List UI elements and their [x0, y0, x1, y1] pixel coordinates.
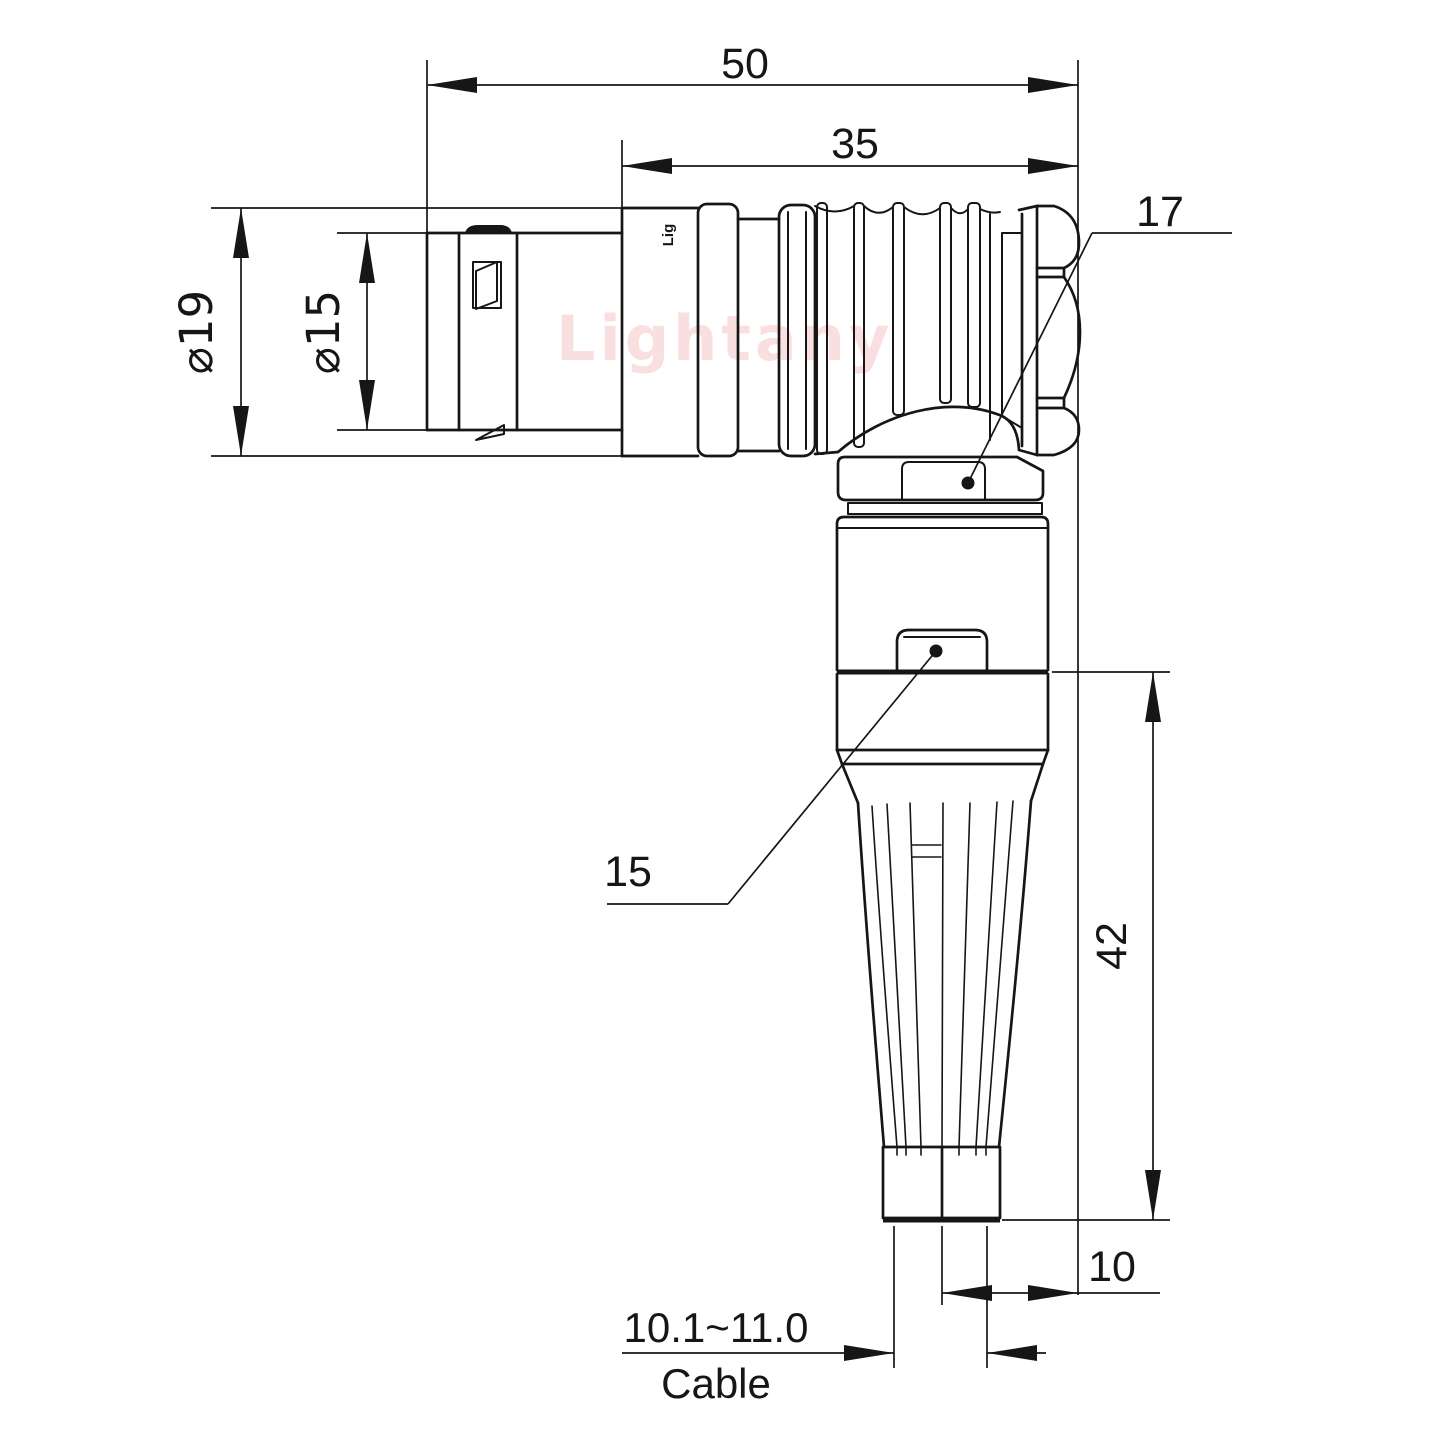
bellows [779, 203, 1019, 456]
arrow-left-icon [987, 1345, 1037, 1361]
dimensions: 50 35 ⌀19 ⌀15 [170, 40, 1232, 1407]
arrow-up-icon [233, 208, 249, 258]
dimension-42: 42 [1002, 672, 1170, 1220]
arrow-left-icon [942, 1285, 992, 1301]
elbow-block [838, 457, 1043, 500]
arrow-down-icon [233, 406, 249, 456]
watermark-text: Lightany [556, 302, 893, 375]
hex-nut [1002, 206, 1080, 455]
dia-19-label: ⌀19 [170, 290, 223, 374]
key-tab [476, 425, 504, 440]
dia-15-label: ⌀15 [297, 290, 350, 374]
arrow-up-icon [359, 233, 375, 283]
latch-bump [465, 225, 512, 233]
connector-drawing-svg: Lightany Lig [0, 0, 1440, 1440]
dimension-50: 50 [427, 40, 1078, 93]
arrow-right-icon [1028, 1285, 1078, 1301]
strain-relief-cone [858, 801, 1031, 1147]
vertical-barrel [837, 517, 1048, 672]
label-17: 17 [1136, 188, 1184, 236]
label-15: 15 [604, 848, 652, 896]
technical-drawing-page: Lightany Lig [0, 0, 1440, 1440]
leader-15: 15 [604, 651, 936, 904]
dim-42-label: 42 [1088, 922, 1136, 970]
dimension-10: 10 [942, 1226, 1160, 1305]
latch-leaf [476, 262, 497, 309]
cable-range-label: 10.1~11.0 [624, 1304, 809, 1351]
arrow-right-icon [1028, 77, 1078, 93]
dim-50-label: 50 [721, 40, 769, 88]
arrow-right-icon [844, 1345, 894, 1361]
arrow-left-icon [427, 77, 477, 93]
arrow-up-icon [1145, 672, 1161, 722]
dim-35-label: 35 [831, 120, 879, 168]
dimension-dia15: ⌀15 [297, 233, 429, 430]
dimension-35: 35 [622, 120, 1078, 174]
dim-10-label: 10 [1088, 1243, 1136, 1291]
washer-ring [848, 503, 1042, 514]
arrow-down-icon [359, 380, 375, 430]
strain-relief-nut [837, 674, 1048, 803]
shell-marking-text: Lig [660, 224, 677, 247]
arrow-down-icon [1145, 1170, 1161, 1220]
arrow-left-icon [622, 158, 672, 174]
cable-label: Cable [661, 1360, 771, 1407]
dimension-cable: 10.1~11.0 Cable [622, 1226, 1046, 1407]
arrow-right-icon [1028, 158, 1078, 174]
cable-end-block [883, 1147, 1000, 1220]
